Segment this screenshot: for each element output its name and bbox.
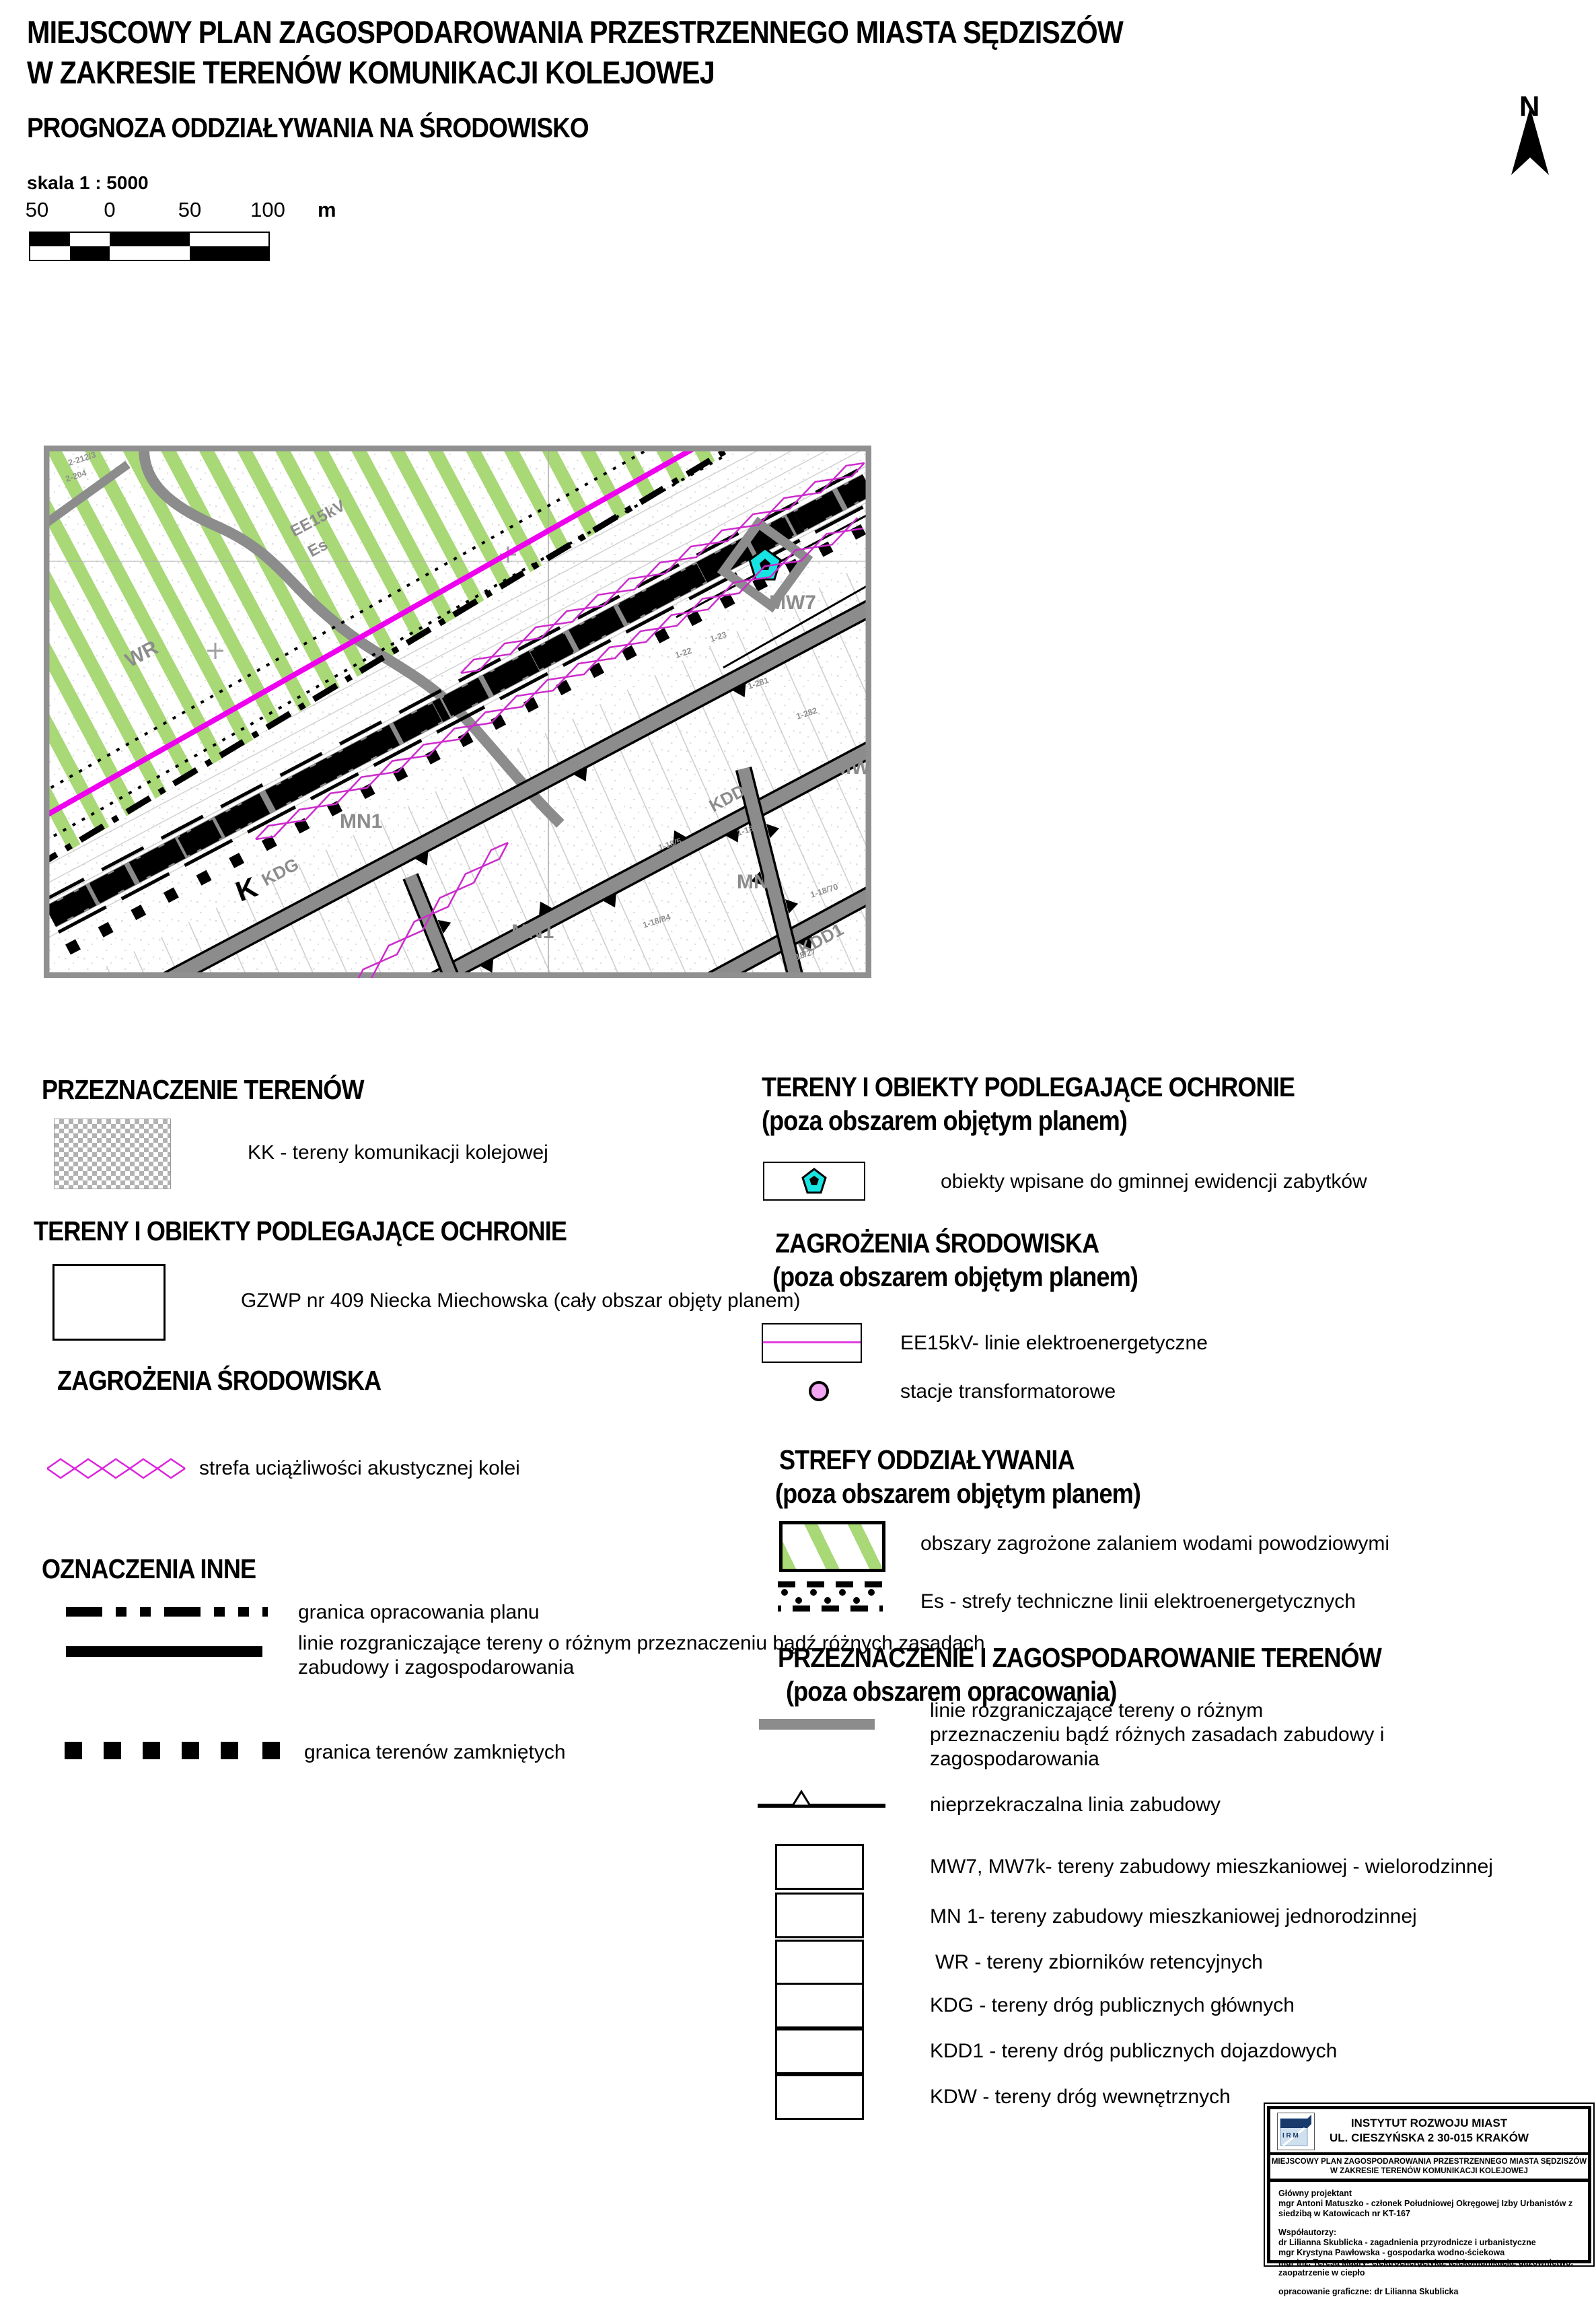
kdg-swatch	[775, 1983, 864, 2028]
page-title-line1: MIEJSCOWY PLAN ZAGOSPODAROWANIA PRZESTRZ…	[27, 13, 1272, 50]
legend-item-label: Es - strefy techniczne linii elektroener…	[920, 1590, 1356, 1614]
wr-swatch	[775, 1940, 864, 1985]
legend-subheading: (poza obszarem objętym planem)	[775, 1478, 1190, 1510]
plan-boundary-symbol	[66, 1604, 268, 1619]
legend-item-label: obszary zagrożone zalaniem wodami powodz…	[920, 1532, 1389, 1556]
legend-item-label: MN 1- tereny zabudowy mieszkaniowej jedn…	[930, 1905, 1417, 1929]
coauthor: mgr inż. Teresa Mądry- elektroenergetyka…	[1278, 2258, 1581, 2278]
graphics-credit: opracowanie graficzne: dr Lilianna Skubl…	[1278, 2287, 1581, 2297]
legend-heading: STREFY ODDZIAŁYWANIA	[779, 1444, 1115, 1476]
coauthor: mgr Krystyna Pawłowska - gospodarka wodn…	[1278, 2248, 1581, 2258]
chief-designer: mgr Antoni Matuszko - członek Południowe…	[1278, 2199, 1581, 2219]
institute-address: UL. CIESZYŃSKA 2 30-015 KRAKÓW	[1270, 2131, 1588, 2146]
building-line-symbol	[758, 1788, 887, 1812]
legend-heading: PRZEZNACZENIE I ZAGOSPODAROWANIE TERENÓW	[778, 1642, 1463, 1674]
map-area-label: MN1	[737, 871, 779, 893]
legend-heading: PRZEZNACZENIE TERENÓW	[42, 1074, 408, 1106]
legend-item-label: granica terenów zamkniętych	[304, 1740, 566, 1765]
scalebar-tick: 50	[178, 198, 201, 222]
legend-item-label: KDW - tereny dróg wewnętrznych	[930, 2085, 1231, 2109]
es-zone-symbol	[776, 1579, 884, 1614]
closed-areas-symbol	[65, 1742, 281, 1761]
coauthor: dr Lilianna Skublicka - zagadnienia przy…	[1278, 2238, 1581, 2248]
chief-designer-label: Główny projektant	[1278, 2189, 1581, 2199]
legend-item-label: GZWP nr 409 Niecka Miechowska (cały obsz…	[241, 1289, 800, 1313]
title-block: I R M INSTYTUT ROZWOJU MIAST UL. CIESZYŃ…	[1264, 2102, 1595, 2267]
page-title-line2: W ZAKRESIE TERENÓW KOMUNIKACJI KOLEJOWEJ	[27, 54, 808, 91]
legend-item-label: linie rozgraniczające tereny o różnym pr…	[930, 1699, 1387, 1771]
monument-pentagon-icon	[799, 1166, 829, 1196]
legend-heading: TERENY I OBIEKTY PODLEGAJĄCE OCHRONIE	[762, 1071, 1367, 1103]
north-arrow-shape	[1511, 108, 1549, 175]
legend-item-label: MW7, MW7k- tereny zabudowy mieszkaniowej…	[930, 1855, 1493, 1879]
title-block-header: I R M INSTYTUT ROZWOJU MIAST UL. CIESZYŃ…	[1270, 2109, 1588, 2155]
acoustic-zone-symbol	[47, 1455, 186, 1482]
legend-subheading: (poza obszarem objętym planem)	[762, 1105, 1177, 1137]
scalebar-tick: 50	[26, 198, 48, 222]
monument-swatch	[763, 1162, 865, 1201]
gzwp-swatch	[52, 1264, 166, 1341]
legend-heading: TERENY I OBIEKTY PODLEGAJĄCE OCHRONIE	[34, 1215, 639, 1247]
title-block-plan: MIEJSCOWY PLAN ZAGOSPODAROWANIA PRZESTRZ…	[1270, 2155, 1588, 2182]
scalebar-tick: 0	[104, 198, 115, 222]
legend-item-label: strefa uciążliwości akustycznej kolei	[199, 1456, 520, 1481]
legend-item-label: nieprzekraczalna linia zabudowy	[930, 1793, 1221, 1817]
kdw-swatch	[775, 2074, 864, 2120]
legend-item-label: KK - tereny komunikacji kolejowej	[248, 1141, 548, 1165]
legend-item-label: KDD1 - tereny dróg publicznych dojazdowy…	[930, 2039, 1337, 2063]
scalebar-tick: 100	[250, 198, 285, 222]
kk-swatch	[54, 1119, 171, 1189]
mw7-swatch	[775, 1844, 864, 1890]
transformer-station-symbol	[809, 1381, 829, 1401]
dividing-lines-gray-symbol	[759, 1719, 875, 1730]
legend-subheading: (poza obszarem objętym planem)	[772, 1261, 1188, 1293]
legend-item-label: obiekty wpisane do gminnej ewidencji zab…	[941, 1170, 1367, 1194]
irm-logo: I R M	[1277, 2113, 1315, 2150]
coauthors-label: Współautorzy:	[1278, 2228, 1581, 2238]
scalebar-unit: m	[318, 198, 336, 222]
north-arrow-icon: N	[1495, 86, 1562, 180]
legend-item-label: WR - tereny zbiorników retencyjnych	[935, 1950, 1263, 1975]
legend-heading: ZAGROŻENIA ŚRODOWISKA	[57, 1365, 425, 1397]
map-area-label: MW7	[769, 592, 816, 614]
legend-heading: OZNACZENIA INNE	[42, 1553, 285, 1585]
kdd1-swatch	[775, 2028, 864, 2074]
dividing-lines-symbol	[66, 1646, 262, 1657]
map-area-label: MW7	[834, 756, 871, 779]
scale-text: skala 1 : 5000	[27, 172, 149, 194]
legend-item-label: EE15kV- linie elektroenergetyczne	[900, 1331, 1208, 1355]
mn1-swatch	[775, 1893, 864, 1938]
ee15kv-swatch	[762, 1323, 862, 1363]
legend-heading: ZAGROŻENIA ŚRODOWISKA	[775, 1228, 1143, 1259]
plan-map: 2-212/32-2041-231-221-2811-2821-18/51-18…	[44, 446, 871, 978]
institute-name: INSTYTUT ROZWOJU MIAST	[1270, 2116, 1588, 2131]
map-area-label: MN1	[511, 921, 554, 943]
title-block-credits: Główny projektant mgr Antoni Matuszko - …	[1270, 2182, 1588, 2297]
plan-document-page: { "header": { "title_line1": "MIEJSCOWY …	[0, 0, 1596, 2269]
irm-logo-text: I R M	[1282, 2132, 1299, 2140]
flood-area-swatch	[779, 1521, 885, 1572]
legend-item-label: KDG - tereny dróg publicznych głównych	[930, 1993, 1295, 2018]
scalebar	[29, 232, 270, 262]
map-area-label: MN1	[340, 810, 382, 833]
legend-item-label: stacje transformatorowe	[900, 1380, 1116, 1404]
page-subtitle: PROGNOZA ODDZIAŁYWANIA NA ŚRODOWISKO	[27, 112, 665, 144]
legend-item-label: granica opracowania planu	[298, 1600, 540, 1625]
